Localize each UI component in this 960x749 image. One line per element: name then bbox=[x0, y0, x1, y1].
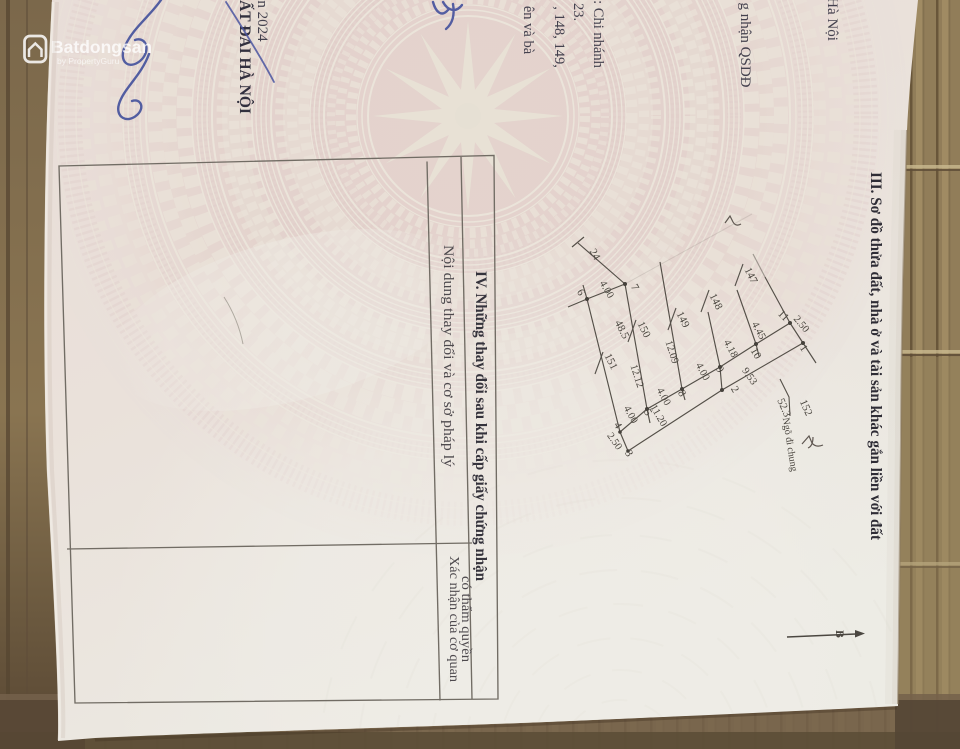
svg-text:by PropertyGuru: by PropertyGuru bbox=[57, 56, 120, 66]
svg-text:IV. Những thay đổi sau khi cấp: IV. Những thay đổi sau khi cấp giấy chứn… bbox=[472, 271, 489, 581]
svg-text:n 2024: n 2024 bbox=[254, 0, 270, 42]
svg-text:Nội dung thay đổi và cơ sở phá: Nội dung thay đổi và cơ sở pháp lý bbox=[440, 245, 456, 468]
svg-text:ên và bà: ên và bà bbox=[520, 6, 536, 55]
svg-text:III. Sơ đồ thửa đất, nhà ở và: III. Sơ đồ thửa đất, nhà ở và tài sản kh… bbox=[867, 172, 886, 541]
svg-text:có thẩm quyền: có thẩm quyền bbox=[458, 576, 473, 662]
svg-text:Batdongsan: Batdongsan bbox=[51, 37, 152, 57]
svg-text:B: B bbox=[833, 630, 845, 638]
svg-text:: Chi nhánh: : Chi nhánh bbox=[590, 0, 606, 68]
svg-text:ẤT ĐAI HÀ NỘI: ẤT ĐAI HÀ NỘI bbox=[236, 0, 254, 114]
svg-text:g nhận QSDĐ: g nhận QSDĐ bbox=[737, 3, 753, 88]
svg-text:Hà Nội: Hà Nội bbox=[824, 0, 840, 41]
svg-text:, 148, 149,: , 148, 149, bbox=[551, 6, 567, 68]
svg-text:23.: 23. bbox=[570, 3, 586, 21]
